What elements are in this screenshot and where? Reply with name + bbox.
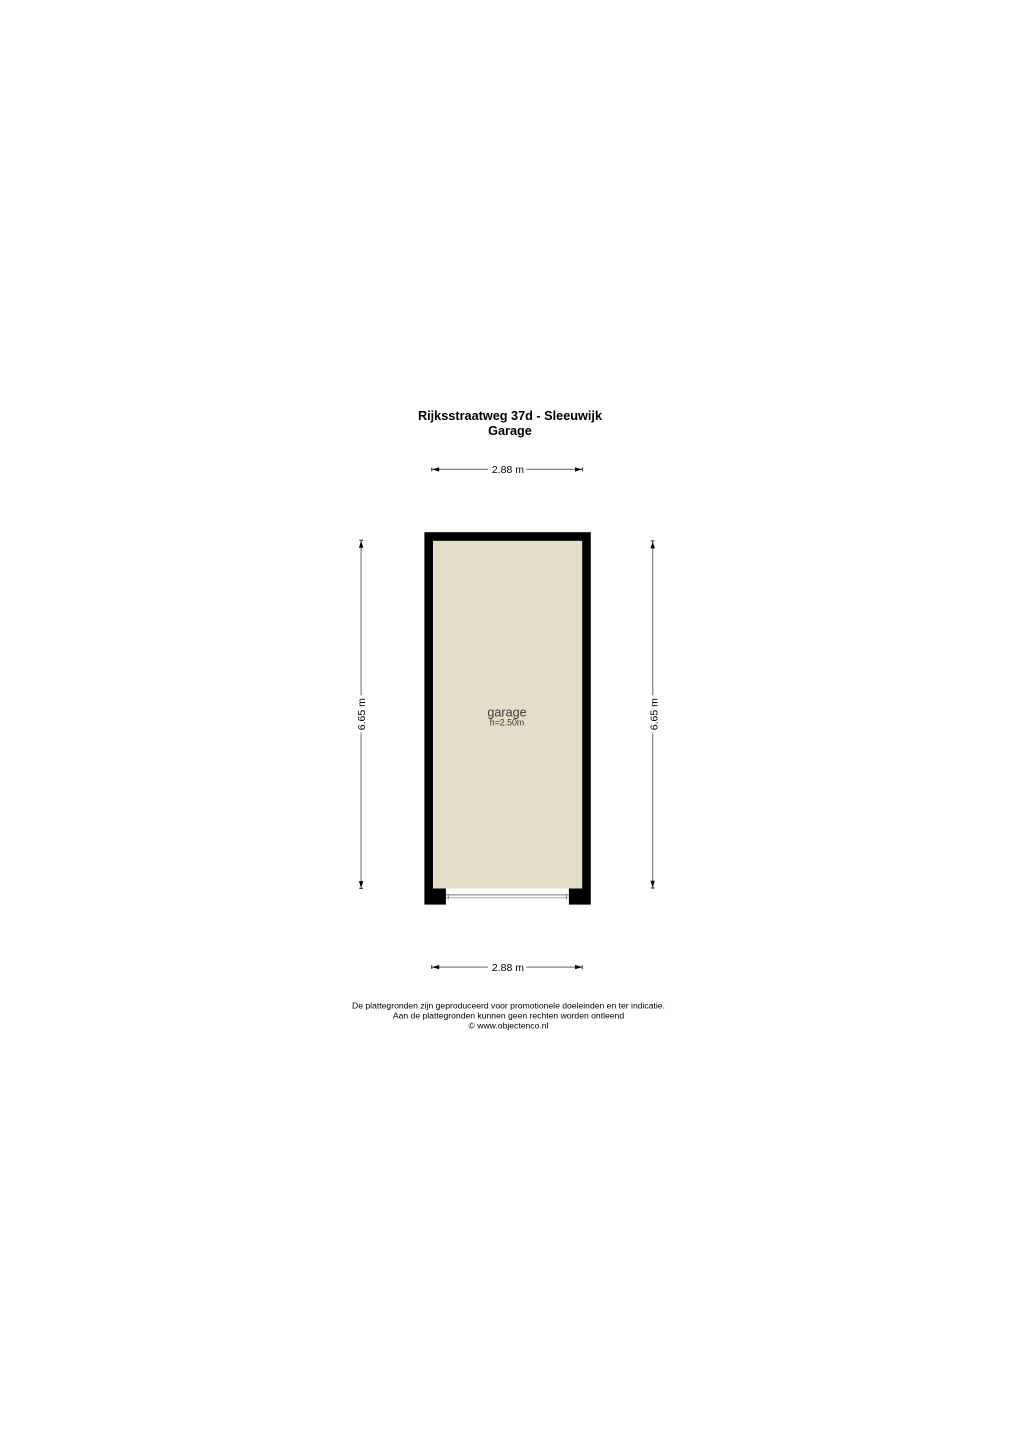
svg-text:Aan de plattegronden kunnen ge: Aan de plattegronden kunnen geen rechten… bbox=[393, 1011, 624, 1021]
svg-text:h=2.50m: h=2.50m bbox=[490, 717, 524, 727]
svg-text:6.65 m: 6.65 m bbox=[649, 698, 661, 730]
svg-text:De plattegronden zijn geproduc: De plattegronden zijn geproduceerd voor … bbox=[352, 1001, 665, 1011]
svg-text:Rijksstraatweg 37d - Sleeuwijk: Rijksstraatweg 37d - Sleeuwijk bbox=[418, 409, 603, 423]
svg-text:2.88 m: 2.88 m bbox=[492, 962, 524, 974]
svg-text:Garage: Garage bbox=[488, 424, 532, 438]
svg-text:© www.objectenco.nl: © www.objectenco.nl bbox=[469, 1020, 549, 1030]
svg-text:6.65 m: 6.65 m bbox=[356, 698, 368, 730]
svg-text:2.88 m: 2.88 m bbox=[492, 464, 524, 476]
